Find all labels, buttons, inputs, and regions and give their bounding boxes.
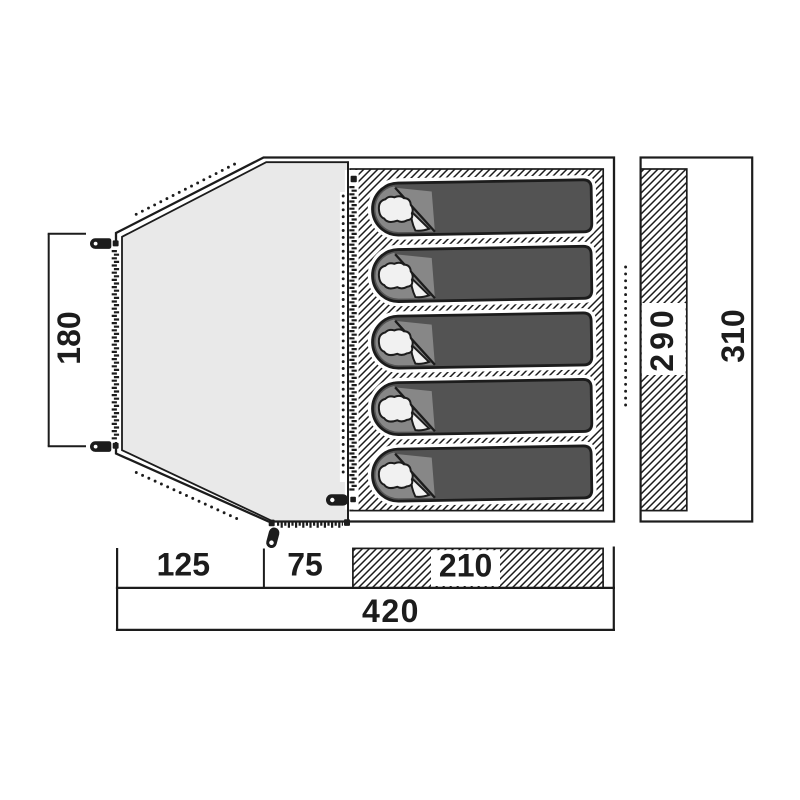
svg-text:125: 125 [157,547,210,583]
svg-text:75: 75 [287,547,323,583]
svg-text:290: 290 [644,306,680,371]
svg-text:310: 310 [715,309,751,362]
svg-text:420: 420 [362,593,420,629]
svg-text:210: 210 [439,547,492,583]
svg-text:180: 180 [51,311,87,364]
